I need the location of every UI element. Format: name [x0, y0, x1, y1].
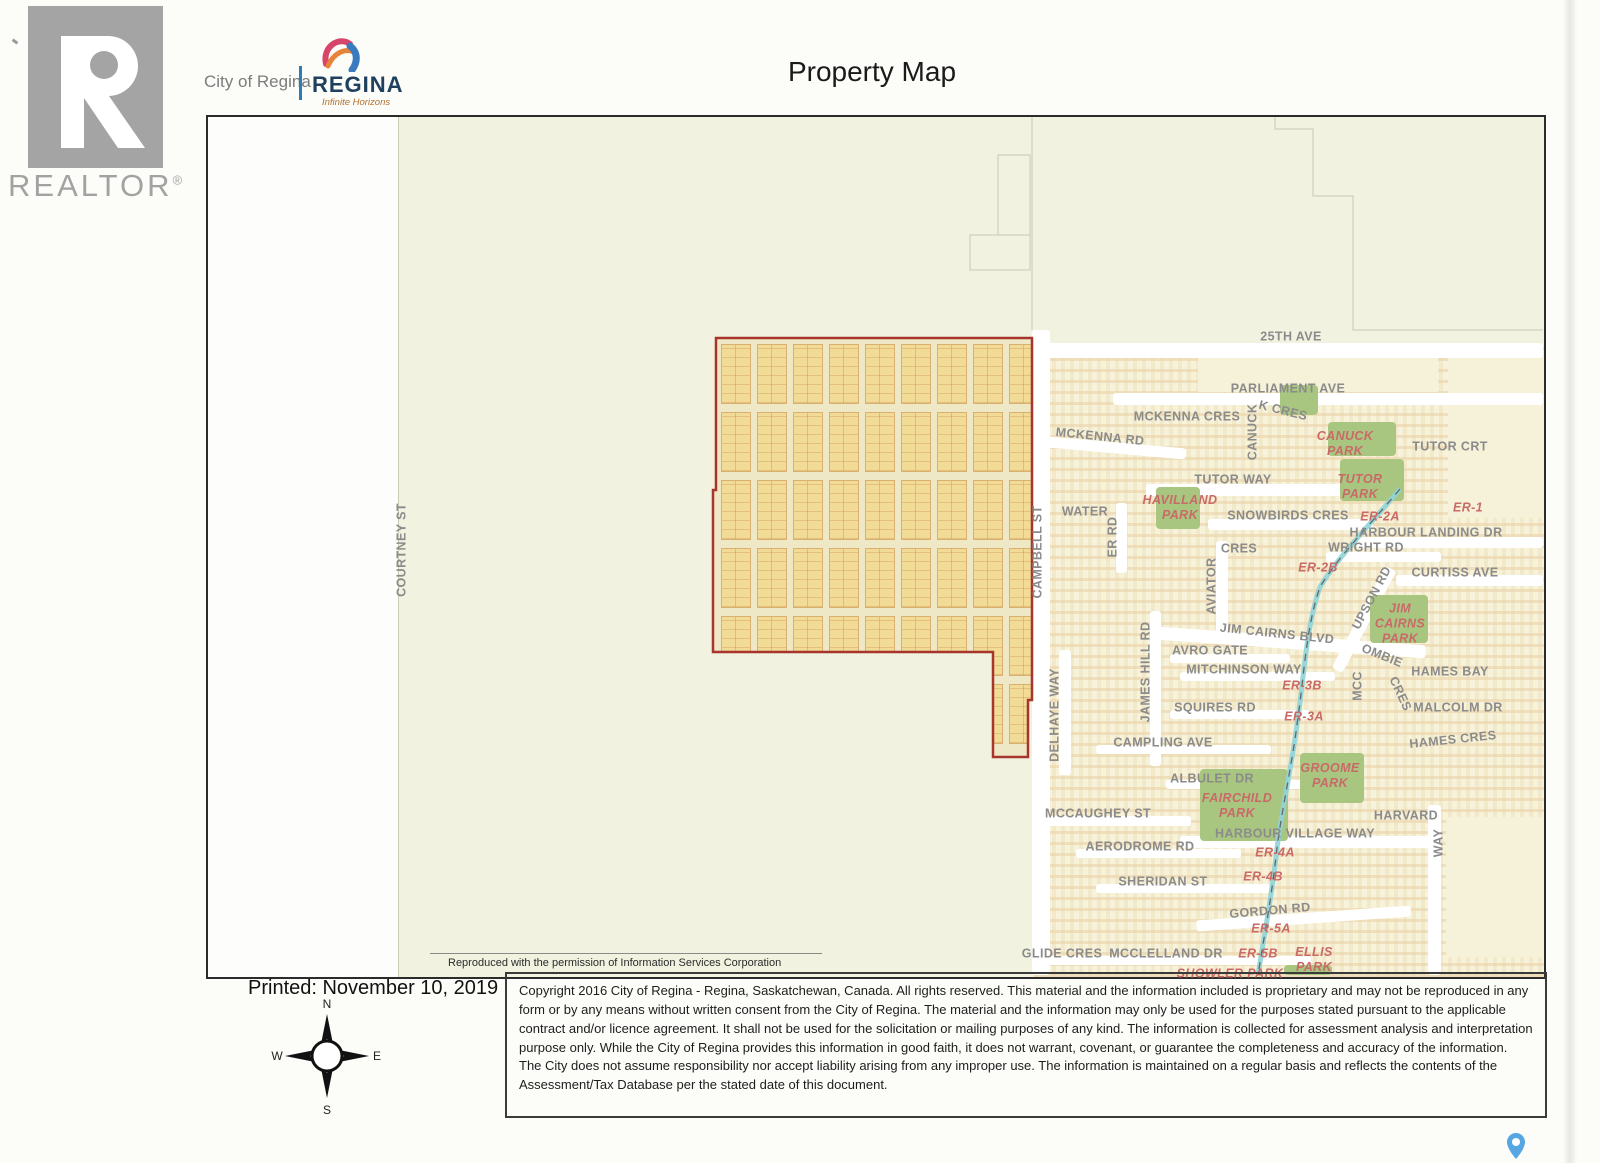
map-attribution: Reproduced with the permission of Inform…: [448, 957, 781, 969]
realtor-logo-icon: [28, 6, 163, 168]
attribution-underline: [430, 953, 822, 954]
property-map-page: REALTOR® City of Regina REGINA Infinite …: [0, 0, 1600, 1163]
brand-divider: [299, 66, 302, 100]
copyright-notice: Copyright 2016 City of Regina - Regina, …: [505, 972, 1547, 1118]
regina-swirl-icon: [316, 34, 364, 72]
city-of-regina-label: City of Regina: [204, 72, 311, 92]
compass-south-label: S: [323, 1103, 331, 1116]
scan-artifact: [12, 39, 19, 45]
regina-brand-text: REGINA: [312, 72, 404, 98]
scan-artifact: [1563, 0, 1577, 1163]
compass-east-label: E: [373, 1049, 381, 1063]
registered-mark: ®: [173, 173, 186, 188]
page-title: Property Map: [788, 56, 956, 88]
compass-rose-icon: N S W E: [265, 992, 389, 1116]
map-canvas: Reproduced with the permission of Inform…: [206, 115, 1546, 979]
subject-property-outline: [208, 117, 1544, 977]
map-pin-icon: [1505, 1132, 1527, 1160]
compass-west-label: W: [271, 1049, 283, 1063]
compass-north-label: N: [323, 997, 332, 1011]
realtor-logo-text: REALTOR®: [8, 168, 198, 204]
regina-brand-tagline: Infinite Horizons: [322, 97, 390, 108]
